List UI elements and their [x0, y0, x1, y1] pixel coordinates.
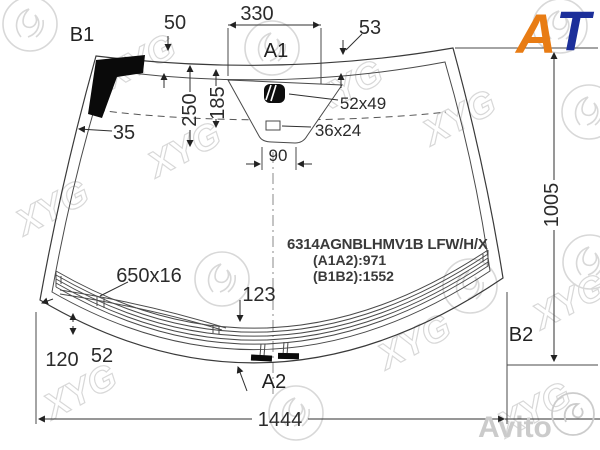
dim-side-band: 35 — [113, 122, 135, 144]
mirror-mount — [264, 84, 285, 103]
dim-mount-base: 90 — [269, 146, 288, 165]
dim-heater-drop: 123 — [242, 284, 275, 306]
dim-glass-width: 1444 — [258, 409, 303, 431]
part-a1a2-length: (A1A2):971 — [313, 252, 386, 268]
heater-connectors — [251, 342, 299, 362]
part-b1b2-length: (B1B2):1552 — [313, 268, 394, 284]
dim-drop-mirror: 185 — [207, 86, 229, 119]
windshield-diagram-page: XYG — [0, 0, 600, 450]
dim-wiper-deicer: 650x16 — [116, 265, 182, 287]
at-logo: T A — [514, 0, 595, 65]
dim-heater-offset: 120 — [45, 349, 78, 371]
label-b2: B2 — [509, 324, 533, 346]
dim-glass-height: 1005 — [541, 183, 563, 228]
dim-drop-center: 250 — [179, 93, 201, 126]
dim-mirror-area-width: 330 — [240, 3, 273, 25]
dim-top-band-left: 50 — [164, 12, 186, 34]
heater-connector-right — [278, 353, 299, 359]
avito-watermark-text: Avito — [478, 411, 552, 444]
at-logo-letter-a: A — [514, 2, 556, 65]
dim-sensor-window: 36x24 — [315, 121, 361, 140]
dim-heater-gap: 52 — [91, 345, 113, 367]
at-logo-letter-t: T — [556, 0, 595, 62]
dim-top-band-right: 53 — [359, 17, 381, 39]
heater-connector-left — [251, 354, 272, 361]
part-code: 6314AGNBLHMV1B LFW/H/X — [287, 236, 488, 253]
dim-mirror-mount: 52x49 — [340, 94, 386, 113]
windshield-diagram: XYG — [0, 0, 600, 450]
label-a2: A2 — [262, 371, 286, 393]
label-a1: A1 — [264, 40, 288, 62]
label-b1: B1 — [70, 24, 94, 46]
